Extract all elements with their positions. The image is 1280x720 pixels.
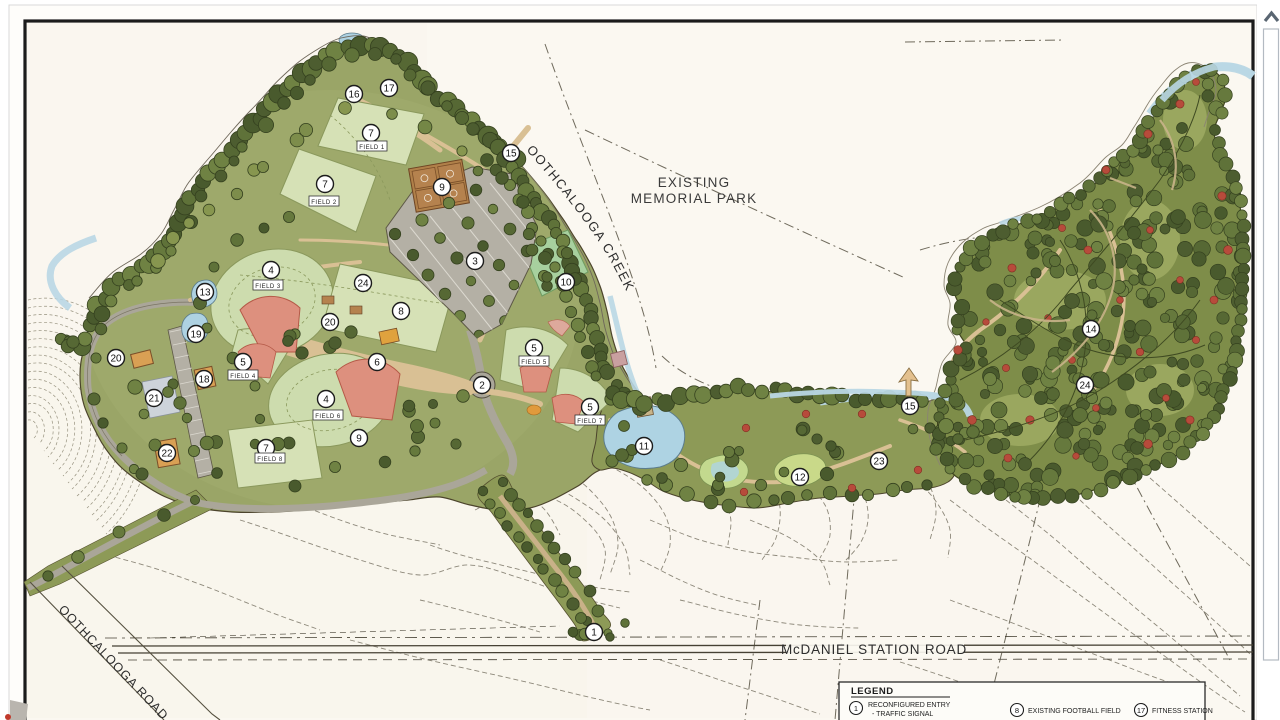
svg-text:6: 6: [374, 357, 380, 368]
svg-text:13: 13: [199, 287, 211, 298]
svg-text:15: 15: [904, 401, 916, 412]
svg-text:19: 19: [190, 329, 202, 340]
svg-text:20: 20: [324, 317, 336, 328]
svg-text:8: 8: [1015, 706, 1019, 715]
svg-text:14: 14: [1085, 324, 1097, 335]
svg-text:McDANIEL STATION ROAD: McDANIEL STATION ROAD: [781, 642, 967, 657]
svg-text:4: 4: [323, 394, 329, 405]
svg-text:10: 10: [560, 277, 572, 288]
svg-text:1: 1: [854, 704, 858, 713]
svg-text:FIELD 2: FIELD 2: [311, 200, 337, 206]
svg-text:16: 16: [348, 89, 360, 100]
svg-text:4: 4: [268, 265, 274, 276]
svg-text:22: 22: [161, 448, 173, 459]
svg-text:FITNESS STATION: FITNESS STATION: [1152, 708, 1213, 715]
svg-text:FIELD 3: FIELD 3: [255, 284, 281, 290]
svg-text:FIELD 8: FIELD 8: [257, 457, 283, 463]
svg-text:FIELD 1: FIELD 1: [359, 145, 385, 151]
svg-text:RECONFIGURED ENTRY: RECONFIGURED ENTRY: [868, 702, 951, 709]
svg-text:2: 2: [479, 380, 485, 391]
svg-text:12: 12: [794, 472, 806, 483]
svg-text:24: 24: [1079, 380, 1091, 391]
svg-text:17: 17: [1137, 706, 1145, 715]
svg-text:3: 3: [472, 256, 478, 267]
svg-text:7: 7: [322, 179, 328, 190]
svg-text:24: 24: [357, 278, 369, 289]
svg-text:5: 5: [531, 343, 537, 354]
svg-text:7: 7: [368, 128, 374, 139]
svg-text:- TRAFFIC SIGNAL: - TRAFFIC SIGNAL: [872, 711, 933, 718]
svg-text:11: 11: [639, 441, 650, 452]
svg-text:LEGEND: LEGEND: [851, 686, 894, 697]
svg-text:MEMORIAL PARK: MEMORIAL PARK: [631, 191, 758, 206]
svg-text:EXISTING: EXISTING: [658, 175, 731, 190]
svg-text:17: 17: [383, 83, 395, 94]
svg-text:FIELD 7: FIELD 7: [577, 419, 603, 425]
svg-text:8: 8: [398, 306, 404, 317]
svg-text:15: 15: [505, 148, 517, 159]
svg-text:EXISTING FOOTBALL FIELD: EXISTING FOOTBALL FIELD: [1028, 708, 1121, 715]
svg-text:21: 21: [148, 393, 160, 404]
svg-text:9: 9: [356, 433, 362, 444]
svg-text:20: 20: [110, 353, 122, 364]
svg-text:1: 1: [591, 627, 597, 638]
svg-text:FIELD 5: FIELD 5: [521, 360, 547, 366]
svg-text:23: 23: [873, 456, 885, 467]
svg-text:5: 5: [240, 357, 246, 368]
svg-text:5: 5: [587, 402, 593, 413]
svg-text:18: 18: [198, 374, 210, 385]
svg-text:9: 9: [439, 182, 445, 193]
svg-text:FIELD 6: FIELD 6: [315, 414, 341, 420]
svg-text:FIELD 4: FIELD 4: [230, 374, 256, 380]
